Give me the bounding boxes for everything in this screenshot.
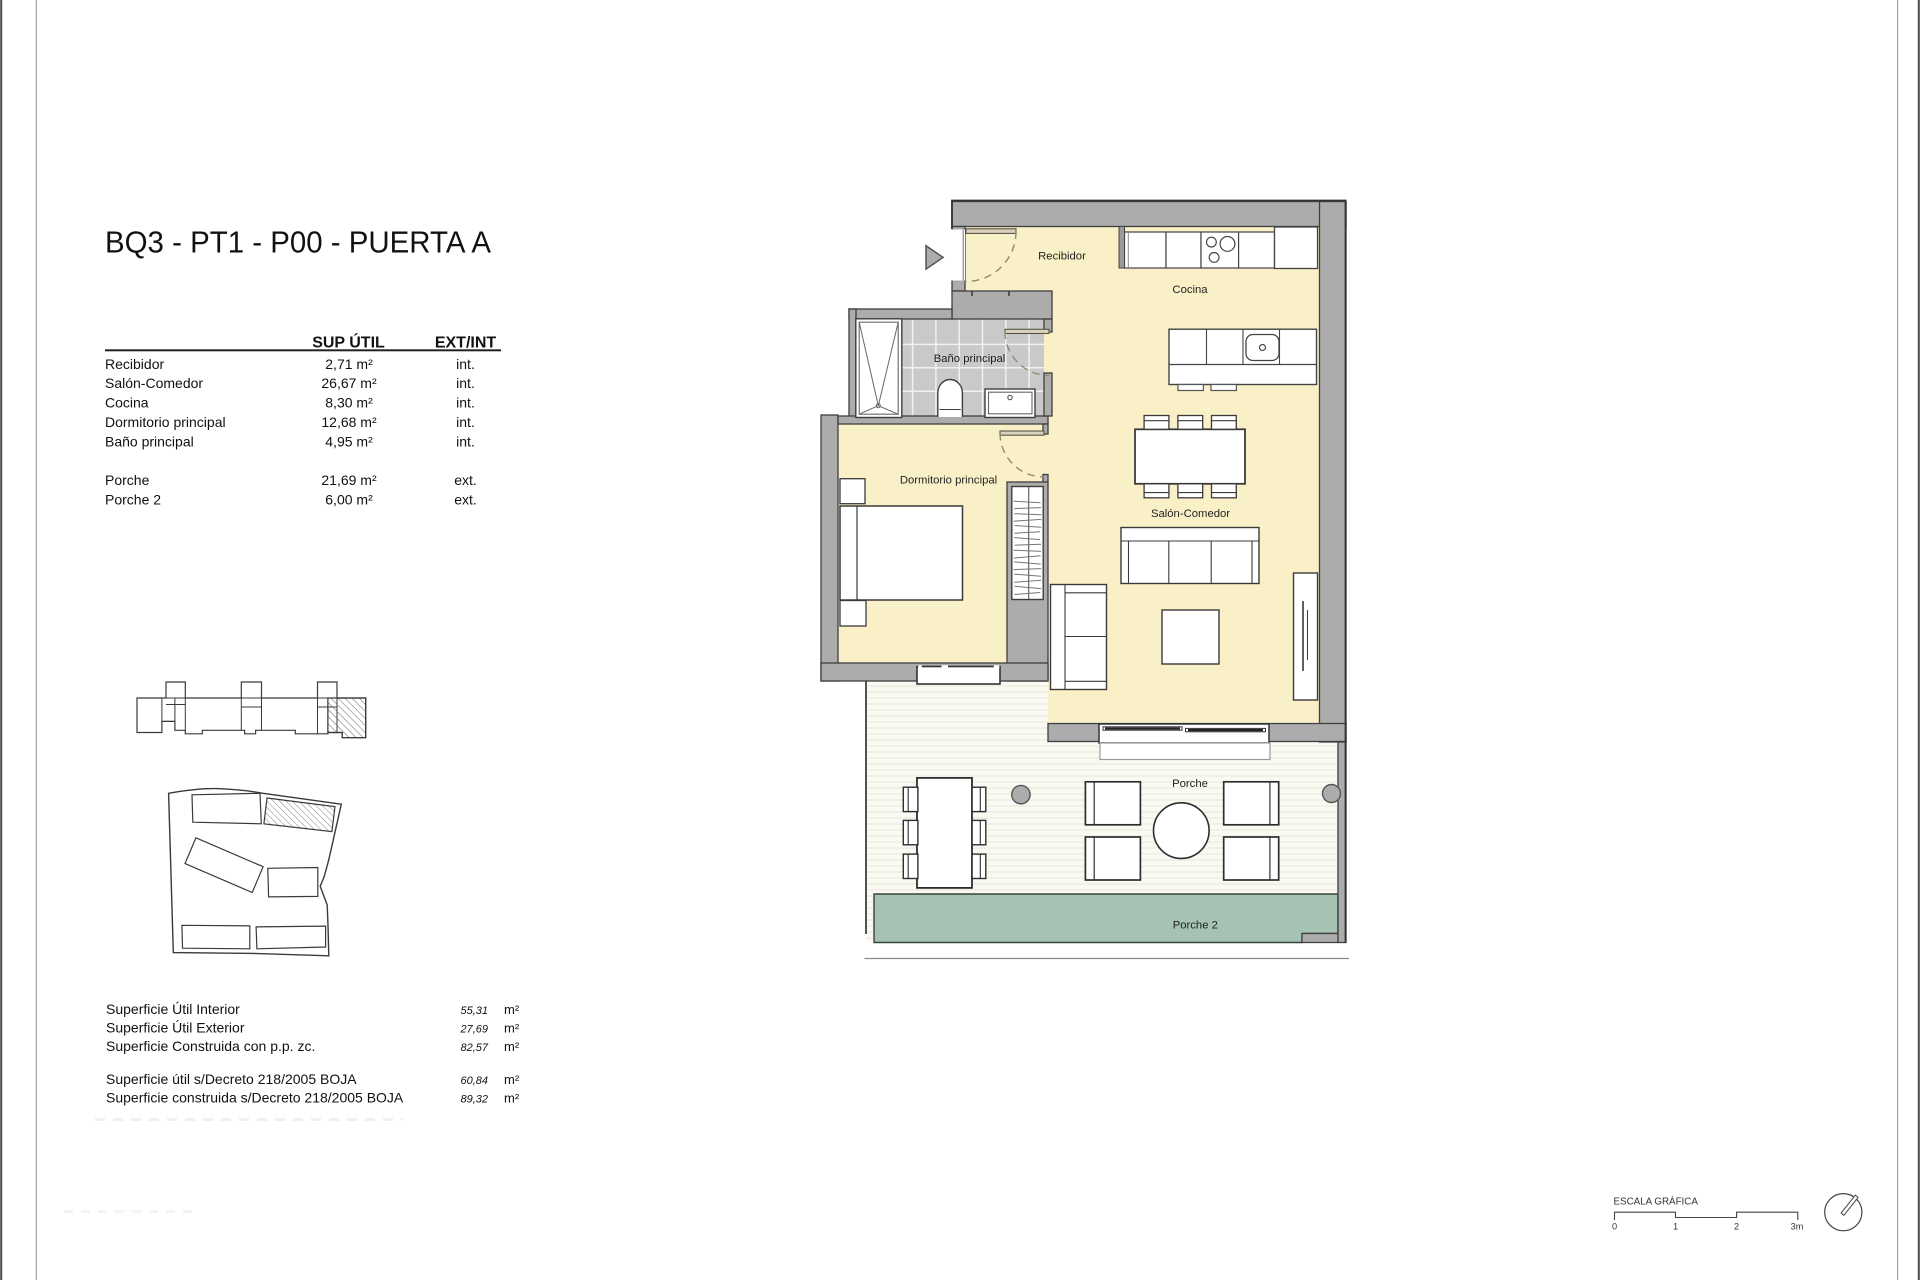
- svg-text:m²: m²: [504, 1039, 520, 1054]
- svg-text:BQ3 - PT1 - P00 - PUERTA A: BQ3 - PT1 - P00 - PUERTA A: [105, 225, 491, 260]
- svg-text:Salón-Comedor: Salón-Comedor: [1151, 508, 1230, 520]
- svg-text:Porche 2: Porche 2: [1173, 920, 1218, 932]
- svg-text:89,32: 89,32: [460, 1093, 488, 1105]
- svg-text:m²: m²: [504, 1020, 520, 1035]
- svg-text:21,69 m²: 21,69 m²: [321, 472, 377, 488]
- svg-text:Dormitorio principal: Dormitorio principal: [900, 475, 997, 487]
- svg-text:ext.: ext.: [454, 472, 477, 488]
- svg-text:Cocina: Cocina: [1172, 284, 1208, 296]
- svg-text:Baño principal: Baño principal: [934, 353, 1006, 365]
- svg-text:Superficie Útil Interior: Superficie Útil Interior: [106, 1001, 240, 1017]
- svg-text:8,30 m²: 8,30 m²: [325, 395, 373, 411]
- svg-text:Porche: Porche: [1172, 778, 1208, 790]
- svg-text:EXT/INT: EXT/INT: [435, 335, 497, 352]
- svg-text:3m: 3m: [1791, 1222, 1804, 1232]
- svg-text:55,31: 55,31: [460, 1005, 488, 1017]
- svg-text:60,84: 60,84: [460, 1075, 488, 1087]
- svg-text:int.: int.: [456, 375, 475, 391]
- svg-text:int.: int.: [456, 395, 475, 411]
- svg-text:int.: int.: [456, 433, 475, 449]
- svg-text:1: 1: [1673, 1222, 1678, 1232]
- svg-text:m²: m²: [504, 1072, 520, 1087]
- svg-text:27,69: 27,69: [459, 1023, 488, 1035]
- svg-text:82,57: 82,57: [460, 1042, 488, 1054]
- svg-text:0: 0: [1612, 1222, 1617, 1232]
- svg-text:Salón-Comedor: Salón-Comedor: [105, 375, 203, 391]
- svg-text:Dormitorio principal: Dormitorio principal: [105, 414, 226, 430]
- svg-text:Baño principal: Baño principal: [105, 433, 194, 449]
- svg-text:Superficie útil s/Decreto 218/: Superficie útil s/Decreto 218/2005 BOJA: [106, 1071, 357, 1087]
- svg-text:Recibidor: Recibidor: [1038, 251, 1086, 263]
- svg-text:Superficie Útil Exterior: Superficie Útil Exterior: [106, 1019, 245, 1035]
- svg-text:Porche: Porche: [105, 472, 150, 488]
- svg-text:Superficie construida s/Decret: Superficie construida s/Decreto 218/2005…: [106, 1089, 404, 1105]
- svg-text:2: 2: [1734, 1222, 1739, 1232]
- svg-text:Cocina: Cocina: [105, 395, 149, 411]
- svg-text:26,67 m²: 26,67 m²: [321, 375, 377, 391]
- svg-text:m²: m²: [504, 1090, 520, 1105]
- svg-text:6,00 m²: 6,00 m²: [325, 492, 373, 508]
- svg-text:SUP ÚTIL: SUP ÚTIL: [312, 333, 385, 352]
- svg-text:int.: int.: [456, 414, 475, 430]
- svg-text:ext.: ext.: [454, 492, 477, 508]
- svg-text:ESCALA GRÁFICA: ESCALA GRÁFICA: [1614, 1197, 1699, 1208]
- svg-text:4,95 m²: 4,95 m²: [325, 433, 373, 449]
- svg-text:Recibidor: Recibidor: [105, 356, 164, 372]
- svg-text:Porche 2: Porche 2: [105, 492, 161, 508]
- svg-text:2,71 m²: 2,71 m²: [325, 356, 373, 372]
- svg-text:Superficie Construida con p.p.: Superficie Construida con p.p. zc.: [106, 1038, 315, 1054]
- svg-text:12,68 m²: 12,68 m²: [321, 414, 377, 430]
- svg-text:int.: int.: [456, 356, 475, 372]
- svg-text:m²: m²: [504, 1002, 520, 1017]
